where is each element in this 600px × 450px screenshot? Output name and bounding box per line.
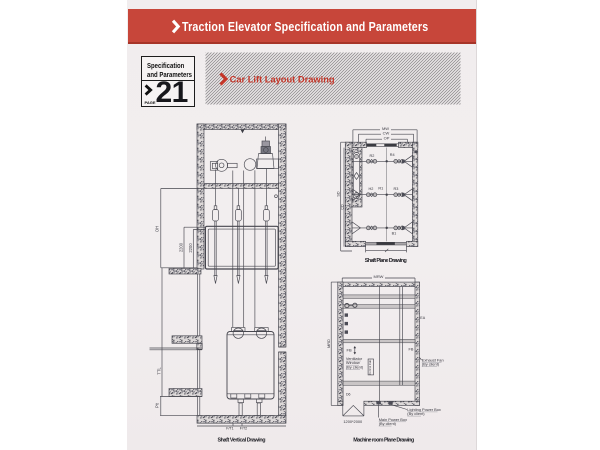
svg-text:SD: SD <box>336 191 340 197</box>
svg-text:F/T2: F/T2 <box>240 427 247 431</box>
svg-text:1200*2000: 1200*2000 <box>343 419 363 424</box>
svg-text:H2: H2 <box>369 187 374 191</box>
svg-text:MRD: MRD <box>327 339 331 348</box>
svg-text:B1: B1 <box>392 232 397 236</box>
svg-text:Shaft Plane Drawing: Shaft Plane Drawing <box>365 258 407 264</box>
svg-text:EA: EA <box>420 316 425 320</box>
svg-text:OP: OP <box>384 136 390 141</box>
svg-text:MRW: MRW <box>374 274 384 279</box>
svg-text:Machine room Plane Drawing: Machine room Plane Drawing <box>353 437 414 443</box>
svg-text:(By client): (By client) <box>407 411 425 416</box>
svg-text:CD: CD <box>340 204 344 210</box>
svg-text:R3: R3 <box>394 187 399 191</box>
svg-text:D6: D6 <box>346 393 351 397</box>
svg-text:Shaft Vertical Drawing: Shaft Vertical Drawing <box>218 438 266 444</box>
svg-text:2200: 2200 <box>188 243 193 253</box>
svg-text:2200: 2200 <box>179 242 184 252</box>
svg-text:(By client): (By client) <box>379 421 397 426</box>
svg-text:FB: FB <box>409 348 414 352</box>
svg-text:R2: R2 <box>370 154 375 158</box>
svg-text:FB: FB <box>347 348 352 353</box>
svg-text:Car Lift Layout Drawing: Car Lift Layout Drawing <box>230 75 335 85</box>
svg-text:R4: R4 <box>390 153 395 157</box>
svg-text:R1: R1 <box>378 187 383 191</box>
svg-text:Pit: Pit <box>155 402 160 408</box>
svg-text:OH: OH <box>155 226 160 232</box>
svg-text:F/T1: F/T1 <box>226 427 233 431</box>
svg-text:Control Cab.: Control Cab. <box>368 359 372 375</box>
svg-text:TTL: TTL <box>156 367 161 375</box>
